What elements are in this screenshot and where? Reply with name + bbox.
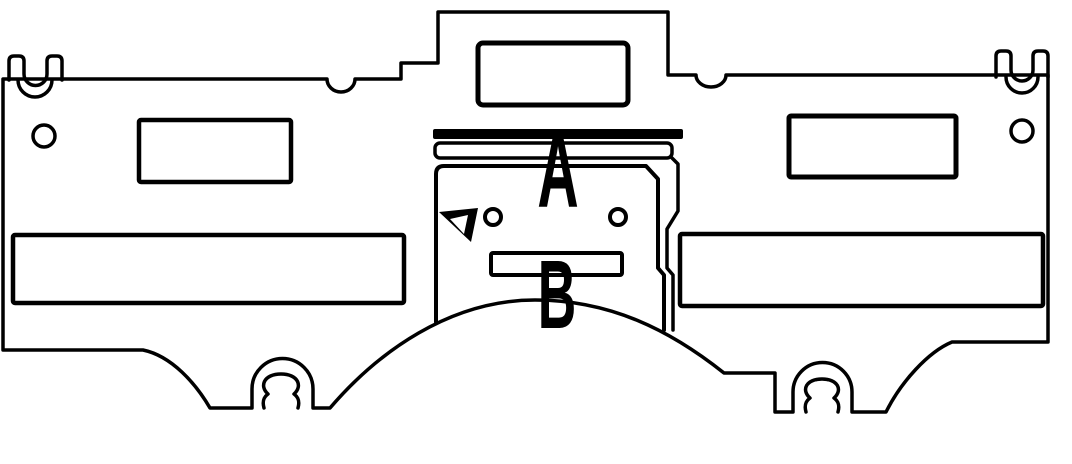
panel-fold-edge (667, 158, 678, 330)
diagram-canvas: A B (0, 0, 1072, 464)
panel-hole-right (610, 209, 626, 225)
right-foot-keyhole (805, 379, 839, 412)
panel-hole-left (485, 209, 501, 225)
parts-diagram: A B (0, 0, 1072, 464)
left-slot-cutout (13, 235, 404, 303)
top-tab-cutout (478, 43, 628, 105)
callout-label-b: B (538, 240, 577, 349)
right-window-cutout (789, 116, 956, 177)
callout-label-a: A (537, 113, 578, 229)
part-outline (3, 12, 1048, 412)
left-window-cutout (139, 120, 291, 182)
right-pilot-hole (1011, 120, 1033, 142)
left-foot-keyhole (263, 374, 299, 408)
left-clip-loop (18, 80, 52, 97)
right-slot-cutout (680, 234, 1043, 306)
left-pilot-hole (33, 125, 55, 147)
